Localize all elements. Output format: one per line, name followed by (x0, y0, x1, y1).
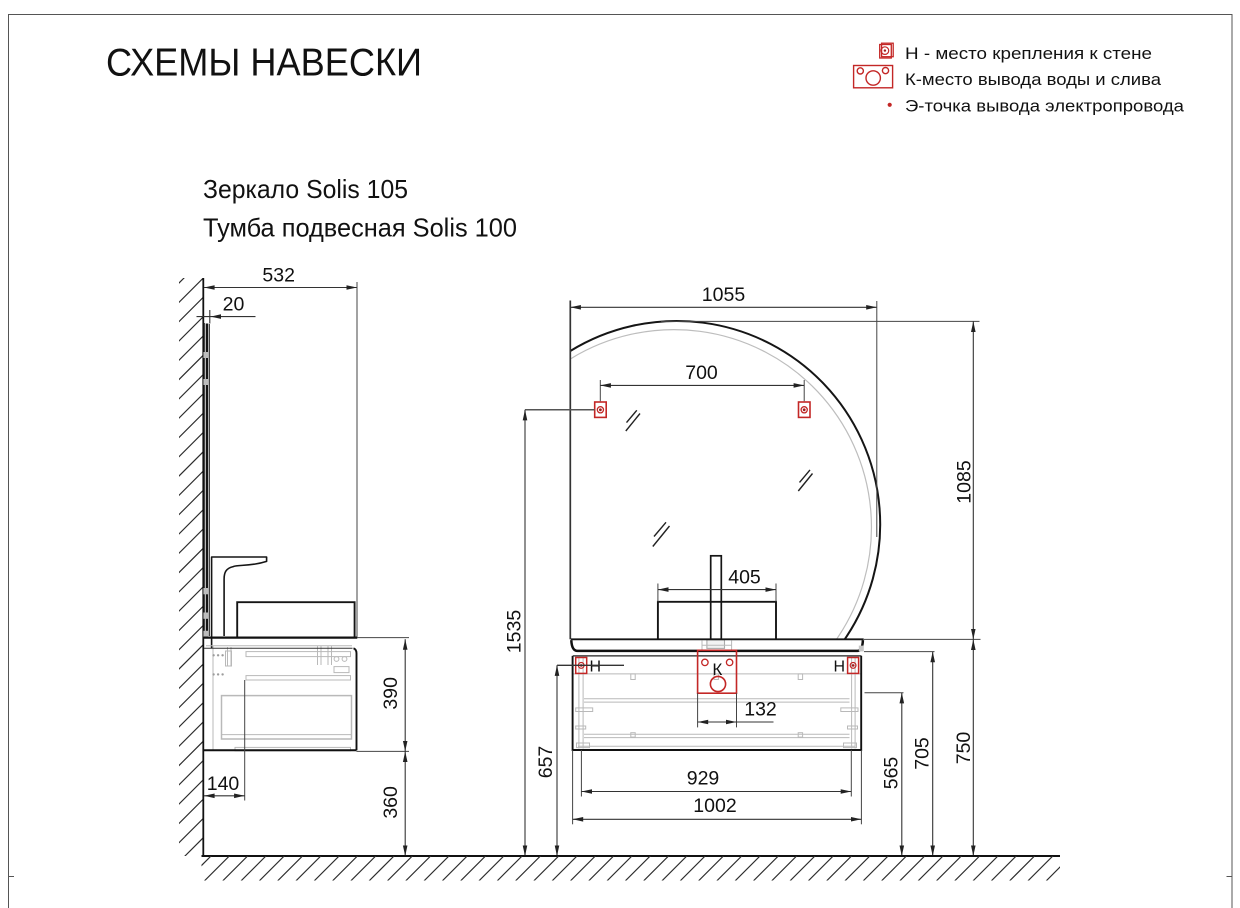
svg-text:1085: 1085 (954, 460, 976, 504)
svg-text:Н: Н (590, 659, 602, 676)
svg-text:700: 700 (685, 362, 718, 384)
svg-text:532: 532 (262, 265, 295, 287)
svg-text:405: 405 (728, 566, 761, 588)
svg-text:132: 132 (744, 698, 777, 720)
svg-text:360: 360 (380, 786, 402, 819)
svg-text:СХЕМЫ НАВЕСКИ: СХЕМЫ НАВЕСКИ (106, 42, 422, 85)
svg-text:929: 929 (687, 768, 720, 790)
svg-text:К: К (712, 660, 722, 679)
svg-text:140: 140 (207, 773, 240, 795)
svg-text:Тумба подвесная Solis 100: Тумба подвесная Solis 100 (203, 213, 517, 243)
svg-text:Н: Н (834, 659, 846, 676)
svg-text:657: 657 (535, 746, 557, 779)
svg-text:705: 705 (911, 737, 933, 770)
svg-text:20: 20 (223, 294, 245, 316)
svg-text:К-место вывода воды и слива: К-место вывода воды и слива (905, 70, 1162, 89)
svg-text:390: 390 (380, 677, 402, 710)
svg-text:Зеркало Solis 105: Зеркало Solis 105 (203, 174, 408, 204)
svg-text:565: 565 (881, 757, 903, 790)
svg-text:Н - место крепления к стене: Н - место крепления к стене (905, 44, 1152, 63)
svg-text:750: 750 (953, 732, 975, 765)
svg-text:1055: 1055 (702, 284, 746, 306)
svg-text:1002: 1002 (693, 795, 736, 817)
svg-text:Э-точка вывода электропровода: Э-точка вывода электропровода (905, 97, 1185, 116)
svg-text:1535: 1535 (504, 610, 526, 654)
